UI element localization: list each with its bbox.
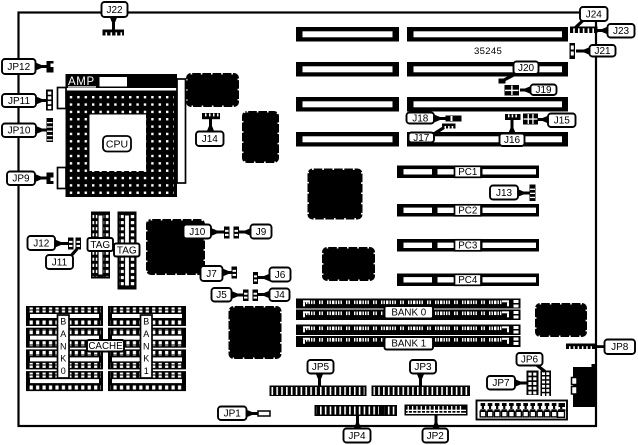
svg-text:J17: J17 bbox=[413, 133, 430, 144]
svg-text:J21: J21 bbox=[594, 46, 611, 57]
svg-text:J7: J7 bbox=[206, 269, 217, 280]
svg-text:K: K bbox=[143, 354, 149, 364]
svg-text:K: K bbox=[60, 354, 66, 364]
svg-text:J24: J24 bbox=[586, 9, 603, 20]
svg-text:J13: J13 bbox=[496, 188, 513, 199]
svg-text:CPU: CPU bbox=[106, 138, 128, 150]
svg-text:J22: J22 bbox=[106, 5, 123, 16]
svg-text:J20: J20 bbox=[518, 63, 535, 74]
svg-text:J16: J16 bbox=[504, 135, 521, 146]
svg-text:JP12: JP12 bbox=[7, 62, 30, 73]
svg-text:N: N bbox=[60, 341, 67, 351]
svg-text:B: B bbox=[143, 317, 149, 327]
svg-text:J6: J6 bbox=[275, 270, 286, 281]
svg-text:J4: J4 bbox=[274, 290, 285, 301]
svg-text:JP7: JP7 bbox=[492, 378, 510, 389]
svg-text:JP10: JP10 bbox=[8, 126, 31, 137]
svg-text:BANK 1: BANK 1 bbox=[391, 339, 426, 350]
svg-text:J18: J18 bbox=[412, 113, 429, 124]
svg-text:PC1: PC1 bbox=[458, 167, 477, 178]
svg-text:A: A bbox=[143, 329, 149, 339]
svg-text:PC3: PC3 bbox=[458, 241, 478, 252]
svg-text:JP2: JP2 bbox=[427, 431, 445, 442]
svg-text:JP5: JP5 bbox=[312, 362, 330, 373]
svg-text:J12: J12 bbox=[33, 238, 50, 249]
svg-text:JP4: JP4 bbox=[348, 431, 366, 442]
svg-text:N: N bbox=[143, 341, 150, 351]
svg-text:A: A bbox=[60, 329, 66, 339]
svg-text:AMP: AMP bbox=[68, 76, 95, 88]
svg-text:J11: J11 bbox=[52, 257, 68, 268]
svg-text:35245: 35245 bbox=[474, 46, 502, 57]
svg-text:1: 1 bbox=[144, 366, 149, 376]
svg-text:J5: J5 bbox=[216, 290, 227, 301]
svg-text:JP1: JP1 bbox=[224, 409, 242, 420]
svg-text:PC4: PC4 bbox=[458, 275, 478, 286]
svg-text:CACHE: CACHE bbox=[88, 341, 123, 352]
svg-text:TAG: TAG bbox=[90, 240, 110, 251]
svg-text:J15: J15 bbox=[554, 116, 571, 127]
svg-text:B: B bbox=[60, 317, 66, 327]
svg-text:JP6: JP6 bbox=[521, 355, 539, 366]
svg-text:0: 0 bbox=[61, 366, 66, 376]
svg-text:JP3: JP3 bbox=[414, 362, 432, 373]
svg-text:J23: J23 bbox=[613, 26, 630, 37]
svg-text:J14: J14 bbox=[202, 134, 219, 145]
svg-text:BANK 0: BANK 0 bbox=[391, 308, 426, 319]
svg-text:J10: J10 bbox=[189, 227, 206, 238]
svg-text:J9: J9 bbox=[256, 227, 267, 238]
svg-text:JP9: JP9 bbox=[12, 174, 30, 185]
svg-text:JP11: JP11 bbox=[8, 96, 30, 107]
svg-text:JP8: JP8 bbox=[611, 342, 629, 353]
svg-text:J19: J19 bbox=[535, 85, 552, 96]
svg-text:PC2: PC2 bbox=[458, 206, 477, 217]
svg-text:TAG: TAG bbox=[117, 245, 137, 256]
